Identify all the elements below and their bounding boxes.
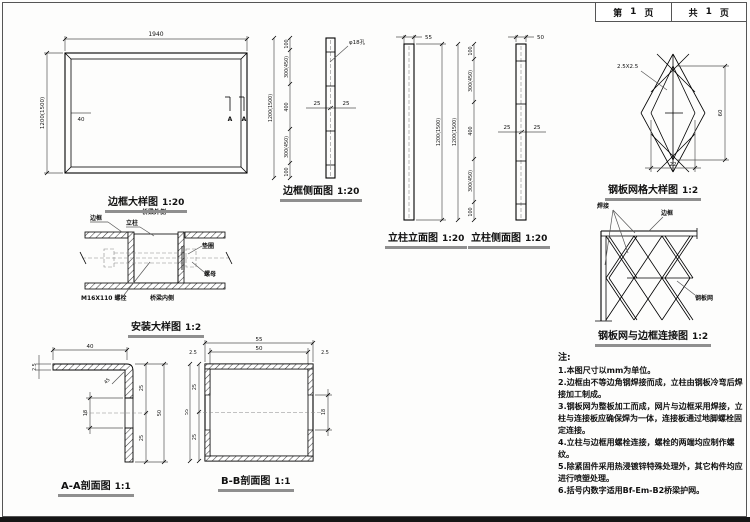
dim-wall-left: 2.5 [189, 350, 197, 356]
dim-left-overall: 55 [185, 409, 190, 415]
caption-scale: 1:20 [162, 198, 184, 208]
notes-title: 注: [558, 350, 744, 363]
caption-mesh-connection: 钢板网与边框连接图1:2 [595, 327, 711, 347]
dim-seg2: 300(450) [284, 56, 290, 78]
dim-seg-top: 25 [192, 384, 198, 390]
caption-text: 钢板网与边框连接图 [598, 331, 688, 342]
caption-section-aa: A-A剖面图1:1 [58, 477, 134, 497]
caption-install-detail: 安装大样图1:2 [128, 318, 204, 338]
page-number-cell: 第 1 页 [596, 3, 671, 21]
mesh-label: 钢板网 [695, 294, 713, 302]
note-line: 1.本图尺寸以mm为单位。 [558, 365, 744, 377]
total-label-suffix: 页 [720, 6, 729, 19]
bb-tube-section [197, 364, 321, 461]
caption-scale: 1:1 [274, 477, 290, 487]
frame-plan-drawing: 1940 1200(1500) 40 A A [35, 25, 265, 185]
dim-25-left: 25 [504, 125, 511, 131]
post-side-drawing: 1200(1500) 100 300(450) 400 300(450) 100… [452, 28, 552, 228]
dim-seg1: 100 [284, 39, 290, 48]
dim-leg-width: 40 [87, 344, 94, 350]
section-aa-drawing: 40 2.5 45 18 25 25 50 [28, 340, 188, 475]
dim-post-width: 55 [425, 35, 432, 41]
post-front-bar [404, 44, 414, 220]
sheet-bottom-edge [0, 517, 750, 522]
dim-25-right: 25 [534, 125, 541, 131]
dim-seg5: 100 [284, 167, 290, 176]
connection-labels: 焊接 边框 钢板网 [597, 202, 713, 302]
dim-overall: 50 [157, 410, 163, 416]
dim-seg3: 400 [468, 126, 474, 135]
caption-text: 安装大样图 [131, 322, 181, 333]
note-line: 5.除紧固件采用热浸镀锌特殊处理外，其它构件均应进行喷塑处理。 [558, 461, 744, 485]
page-label-prefix: 第 [613, 6, 622, 19]
caption-scale: 1:20 [442, 234, 464, 244]
install-detail-drawing: 边框 立柱 桥梁外侧 垫圈 螺母 M16X110 螺栓 桥梁内侧 [78, 198, 253, 310]
dim-inner-width: 50 [256, 346, 263, 352]
dim-seg4: 300(450) [284, 136, 290, 158]
dim-outer-width: 55 [256, 337, 263, 343]
caption-text: 边框大样图 [108, 197, 158, 208]
total-number: 1 [706, 7, 712, 17]
caption-text: 立柱侧面图 [471, 233, 521, 244]
dim-seg-top: 25 [139, 385, 145, 391]
dim-post-width: 50 [537, 35, 544, 41]
caption-frame-plan: 边框大样图1:20 [105, 193, 187, 213]
hole-label: φ18孔 [349, 38, 366, 46]
page-total-cell: 共 1 页 [671, 3, 747, 21]
caption-text: 边框侧面图 [283, 186, 333, 197]
dim-seg2: 300(450) [468, 70, 474, 92]
mesh-detail-drawing: 2.5X2.5 60 22 [595, 42, 745, 178]
dim-seg4: 300(450) [468, 170, 474, 192]
post-side-dimensions: 1200(1500) 100 300(450) 400 300(450) 100… [452, 35, 546, 222]
caption-scale: 1:20 [525, 234, 547, 244]
nut-label: 螺母 [204, 270, 216, 278]
washer-label: 垫圈 [202, 242, 214, 250]
dim-slot: 18 [321, 409, 327, 415]
frame-side-dimensions: 1200(1500) 100 300(450) 400 300(450) 100… [268, 36, 356, 180]
dim-seg-bottom: 25 [139, 435, 145, 441]
caption-section-bb: B-B剖面图1:1 [218, 472, 294, 492]
caption-post-front: 立柱立面图1:20 [385, 229, 467, 249]
section-cut-marks: A A [225, 97, 247, 123]
dim-seg3: 400 [284, 102, 290, 111]
mesh-strands [641, 54, 705, 172]
section-mark-a2: A [242, 116, 247, 123]
strand-size-label: 2.5X2.5 [617, 64, 639, 70]
total-label-prefix: 共 [689, 6, 698, 19]
note-line: 6.括号内数字适用Bf-Em-B2桥梁护网。 [558, 485, 744, 497]
note-line: 4.立柱与边框用螺栓连接，螺栓的两端均应制作螺纹。 [558, 437, 744, 461]
caption-text: 立柱立面图 [388, 233, 438, 244]
section-bb-drawing: 55 50 2.5 2.5 25 25 55 [185, 335, 360, 470]
caption-scale: 1:2 [682, 186, 698, 196]
notes-panel: 注: 1.本图尺寸以mm为单位。 2.边框由不等边角钢焊接而成，立柱由钢板冷弯后… [558, 350, 744, 497]
dim-post-height: 1200(1500) [436, 118, 442, 146]
weld-label: 焊接 [597, 202, 609, 210]
caption-scale: 1:20 [337, 187, 359, 197]
page-label-suffix: 页 [644, 6, 653, 19]
install-structure [80, 232, 232, 289]
dim-corner: 45 [103, 377, 112, 386]
aa-dimensions-top: 40 2.5 [32, 344, 129, 379]
page-number: 1 [630, 7, 636, 17]
dim-mesh-height: 60 [718, 109, 724, 116]
frame-side-drawing: 1200(1500) 100 300(450) 400 300(450) 100… [268, 28, 373, 183]
bb-dimensions-top: 55 50 2.5 2.5 [189, 337, 329, 367]
caption-text: A-A剖面图 [61, 481, 111, 492]
note-line: 3.钢板网为整板加工而成，网片与边框采用焊接，立柱与连接板应确保焊为一体，连接板… [558, 401, 744, 437]
mesh-connection-drawing: 焊接 边框 钢板网 [585, 195, 745, 327]
dim-mesh-width: 22 [670, 162, 677, 168]
bridge-inner-label: 桥梁内侧 [150, 294, 174, 302]
dim-frame-height: 1200(1500) [40, 97, 46, 129]
caption-frame-side: 边框侧面图1:20 [280, 182, 362, 202]
title-block: 第 1 页 共 1 页 [595, 3, 746, 22]
caption-scale: 1:2 [185, 323, 201, 333]
connection-mesh [606, 236, 693, 320]
caption-scale: 1:1 [115, 482, 131, 492]
dim-wall-right: 2.5 [321, 350, 329, 356]
dim-seg1: 100 [468, 46, 474, 55]
frame-outline [65, 53, 247, 173]
dim-overall: 1200(1500) [268, 94, 274, 122]
note-line: 2.边框由不等边角钢焊接而成，立柱由钢板冷弯后焊接加工制成。 [558, 377, 744, 401]
section-mark-a1: A [228, 116, 233, 123]
frame-label: 边框 [89, 214, 102, 222]
dim-overall: 1200(1500) [452, 118, 458, 146]
dim-seg5: 100 [468, 207, 474, 216]
caption-text: 钢板网格大样图 [608, 185, 678, 196]
dim-frame-inset: 40 [78, 117, 85, 123]
frame-label: 边框 [660, 209, 673, 217]
dim-25-left: 25 [314, 101, 321, 107]
caption-mesh-detail: 钢板网格大样图1:2 [605, 181, 701, 201]
dim-seg-bottom: 25 [192, 434, 198, 440]
post-label: 立柱 [126, 219, 138, 227]
caption-scale: 1:2 [692, 332, 708, 342]
caption-text: B-B剖面图 [221, 476, 270, 487]
caption-post-side: 立柱侧面图1:20 [468, 229, 550, 249]
dim-thickness: 2.5 [32, 363, 38, 371]
dim-frame-width: 1940 [148, 31, 163, 38]
dim-25-right: 25 [343, 101, 350, 107]
bolt-label: M16X110 螺栓 [81, 294, 127, 302]
